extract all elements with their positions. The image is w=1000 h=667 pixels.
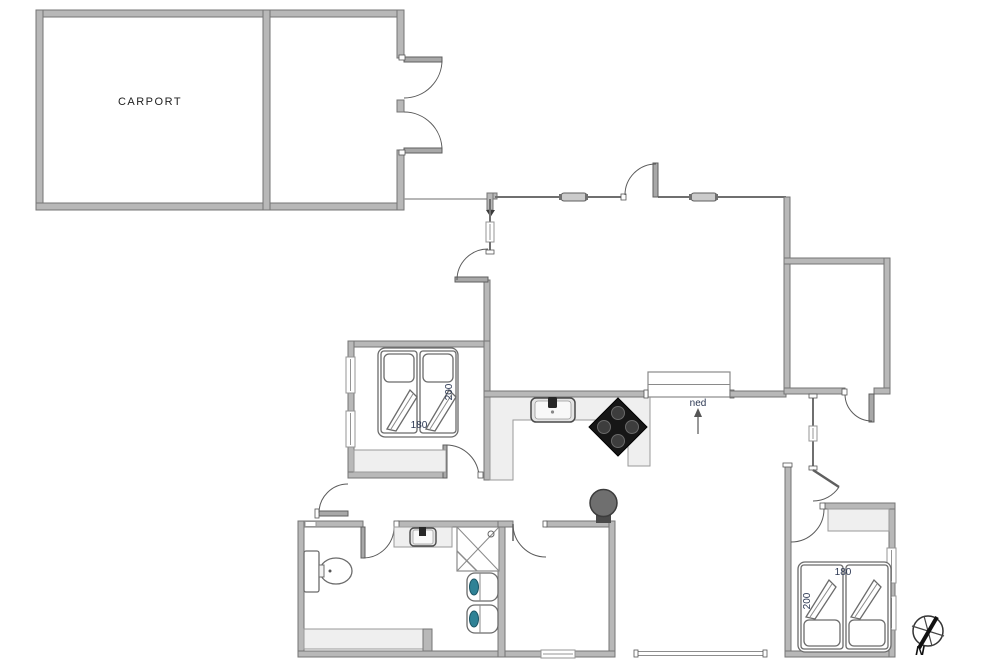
wood-stove-icon — [590, 490, 617, 524]
bed-nw-width-label: 180 — [402, 420, 436, 432]
bench-wall-stub — [423, 629, 432, 651]
entrance-door-swing-icon — [621, 163, 658, 200]
house-west-wall — [484, 199, 494, 347]
extension-room-walls — [784, 258, 890, 394]
stairs-icon — [644, 372, 734, 398]
north-window-icon — [559, 193, 588, 201]
compass-north-label: N — [906, 645, 934, 657]
carport-label: CARPORT — [105, 96, 195, 108]
bed-se-length-label: 200 — [802, 586, 814, 616]
kitchen-north-wall — [484, 391, 648, 397]
kitchen-sink-icon — [531, 397, 575, 422]
wardrobe-icon — [354, 450, 446, 472]
shower-icon — [457, 527, 499, 571]
wardrobe-icon — [828, 509, 889, 531]
bed-se-width-label: 180 — [826, 567, 860, 579]
bathroom-door-swing-icon — [361, 521, 399, 558]
stairs-down-label: ned — [682, 398, 714, 410]
north-window-icon — [689, 193, 718, 201]
bathroom-sink-icon — [394, 527, 452, 547]
living-south-wall — [730, 391, 786, 397]
floor-plan: CARPORT ned 180 200 180 200 N — [0, 0, 1000, 667]
south-window-band-icon — [634, 650, 767, 657]
stairs-direction-arrow-icon — [694, 408, 702, 434]
bedroom-se-door-swing-icon — [791, 503, 825, 542]
shed-double-door-icon — [399, 55, 442, 155]
extension-door-swing-icon — [842, 389, 874, 422]
bedroom-nw-door-swing-icon — [443, 445, 483, 478]
house-east-wall — [784, 197, 790, 394]
middle-room-door-swing-icon — [513, 521, 547, 557]
hall-window-wall — [809, 394, 817, 470]
carport-walls — [36, 10, 404, 210]
south-window-icon — [541, 650, 575, 658]
middle-room-walls — [498, 521, 615, 657]
hall-door-swing-icon — [813, 470, 839, 501]
toilet-icon — [304, 551, 352, 592]
washbasin-icon — [467, 605, 498, 633]
bedroom-nw-window-icon — [346, 411, 355, 447]
west-door-swing-icon — [455, 249, 488, 282]
bed-nw-length-label: 200 — [444, 377, 456, 407]
hall-west-door-swing-icon — [315, 484, 348, 518]
washbasin-icon — [467, 573, 498, 601]
bedroom-nw-window-icon — [346, 357, 355, 393]
bench-icon — [304, 629, 423, 649]
